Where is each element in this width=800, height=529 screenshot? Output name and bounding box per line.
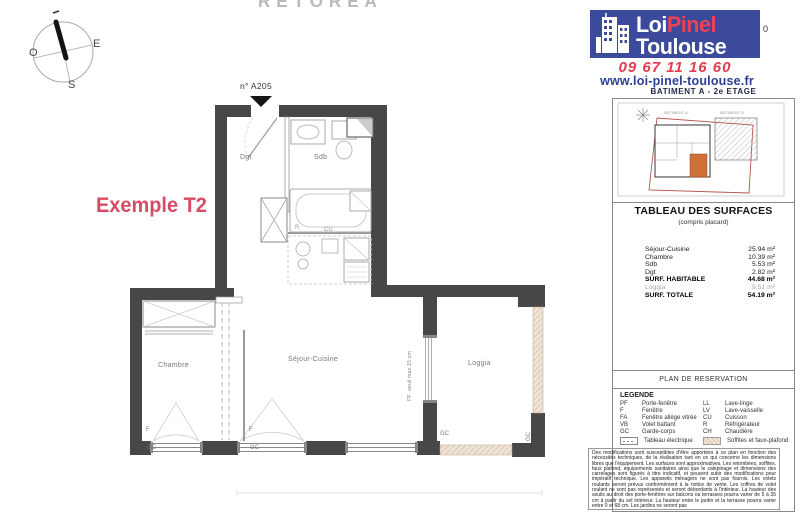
legend-item: FAFenêtre allège vitrée xyxy=(620,415,697,422)
entry-arrow-icon xyxy=(250,96,272,107)
windows xyxy=(151,444,417,452)
legend-item: PFPorte-fenêtre xyxy=(620,401,697,408)
surface-table-title: TABLEAU DES SURFACES xyxy=(612,205,795,217)
pf-glazing xyxy=(423,335,437,403)
window-label-f: F xyxy=(146,427,150,433)
legend-item: LVLave-vaisselle xyxy=(703,408,763,415)
room-label-dgt: Dgt xyxy=(240,154,252,161)
website-link[interactable]: www.loi-pinel-toulouse.fr xyxy=(586,74,768,88)
cooking-label: CU xyxy=(324,227,333,233)
surface-row-total: SURF. TOTALE54.19 m² xyxy=(645,292,775,300)
electrical-panel-symbol xyxy=(620,437,638,445)
surface-row-loggia: Loggia9.51 m² xyxy=(645,284,775,292)
room-label-sdb: Sdb xyxy=(314,154,327,161)
example-type-label: Exemple T2 xyxy=(96,194,207,218)
page: RETOREA O E S n° A205 Exemple T2 Dgt Sdb… xyxy=(0,0,800,529)
legend-symbol-soffit: Soffites et faux-plafond xyxy=(703,437,788,445)
surface-table-subtitle: (compris placard) xyxy=(612,219,795,226)
site-building-a-label: BÂTIMENT A xyxy=(664,110,688,115)
legend-item: VBVolet battant xyxy=(620,422,697,429)
surface-table: Séjour-Cuisine25.94 m² Chambre10.39 m² S… xyxy=(645,246,775,299)
building-logo-icon xyxy=(594,13,636,55)
section-divider xyxy=(612,202,795,203)
surface-row: Séjour-Cuisine25.94 m² xyxy=(645,246,775,254)
stray-digit: 0 xyxy=(763,24,768,34)
room-label-loggia: Loggia xyxy=(468,360,491,367)
guardrail-label-gc: GC xyxy=(440,431,449,437)
room-label-sejour: Séjour-Cuisine xyxy=(288,356,338,363)
disclaimer-text: Des modifications sont susceptibles d'êt… xyxy=(592,451,776,509)
guardrail-label-gc: GC xyxy=(250,445,259,451)
highlighted-unit xyxy=(690,154,707,177)
site-map: BÂTIMENT A BÂTIMENT B xyxy=(612,98,795,202)
legend-item: GCGarde-corps xyxy=(620,429,697,436)
disclaimer-box: Des modifications sont susceptibles d'êt… xyxy=(588,448,780,510)
fridge-label: R xyxy=(295,225,299,231)
floor-plan: RETOREA O E S n° A205 Exemple T2 Dgt Sdb… xyxy=(0,0,585,529)
building-floor-label: BATIMENT A - 2e ETAGE xyxy=(612,87,795,96)
compass-east-label: E xyxy=(93,38,100,50)
building-a-outline xyxy=(655,125,710,177)
legend-item: CUCuisson xyxy=(703,415,763,422)
site-compass-icon xyxy=(636,108,650,122)
walls xyxy=(130,105,545,457)
dimension-line xyxy=(237,490,542,496)
legend-item: RRéfrigérateur xyxy=(703,422,763,429)
unit-number: n° A205 xyxy=(240,81,272,91)
pf-threshold-label: PF seuil max 15 cm xyxy=(407,351,413,401)
watermark: RETOREA xyxy=(258,0,408,17)
legend-item: FFenêtre xyxy=(620,408,697,415)
legend-title: LEGENDE xyxy=(620,392,654,399)
compass-south-label: S xyxy=(68,79,75,91)
compass-west-label: O xyxy=(29,47,38,59)
site-building-b-label: BÂTIMENT B xyxy=(720,110,744,115)
soffit-symbol xyxy=(703,437,721,445)
window-label-f: F xyxy=(249,427,253,433)
building-b-hatched xyxy=(715,118,757,160)
logo-text-line2: Toulouse xyxy=(636,34,726,60)
kitchen xyxy=(288,236,371,284)
legend-column-1: PFPorte-fenêtre FFenêtre FAFenêtre allèg… xyxy=(620,401,697,435)
legend-symbol-electrical: Tableau électrique xyxy=(620,437,693,445)
legend-item: LLLave-linge xyxy=(703,401,763,408)
fixtures xyxy=(143,118,373,334)
surface-row-habitable: SURF. HABITABLE44.68 m² xyxy=(645,276,775,284)
surface-row: Chambre10.39 m² xyxy=(645,254,775,262)
reservation-banner: PLAN DE RESERVATION xyxy=(612,370,795,389)
compass-icon xyxy=(33,11,93,82)
brand-logo: LoiPinel Toulouse xyxy=(590,10,760,58)
surface-row: Sdb5.53 m² xyxy=(645,261,775,269)
room-label-chambre: Chambre xyxy=(158,362,189,369)
guardrail-label-gc: GC xyxy=(147,445,156,451)
legend-item: CHChaudière xyxy=(703,429,763,436)
floor-plan-drawing xyxy=(0,0,585,529)
legend-column-2: LLLave-linge LVLave-vaisselle CUCuisson … xyxy=(703,401,763,435)
guardrail-label-gc: GC xyxy=(526,432,532,441)
surface-row: Dgt2.82 m² xyxy=(645,269,775,277)
